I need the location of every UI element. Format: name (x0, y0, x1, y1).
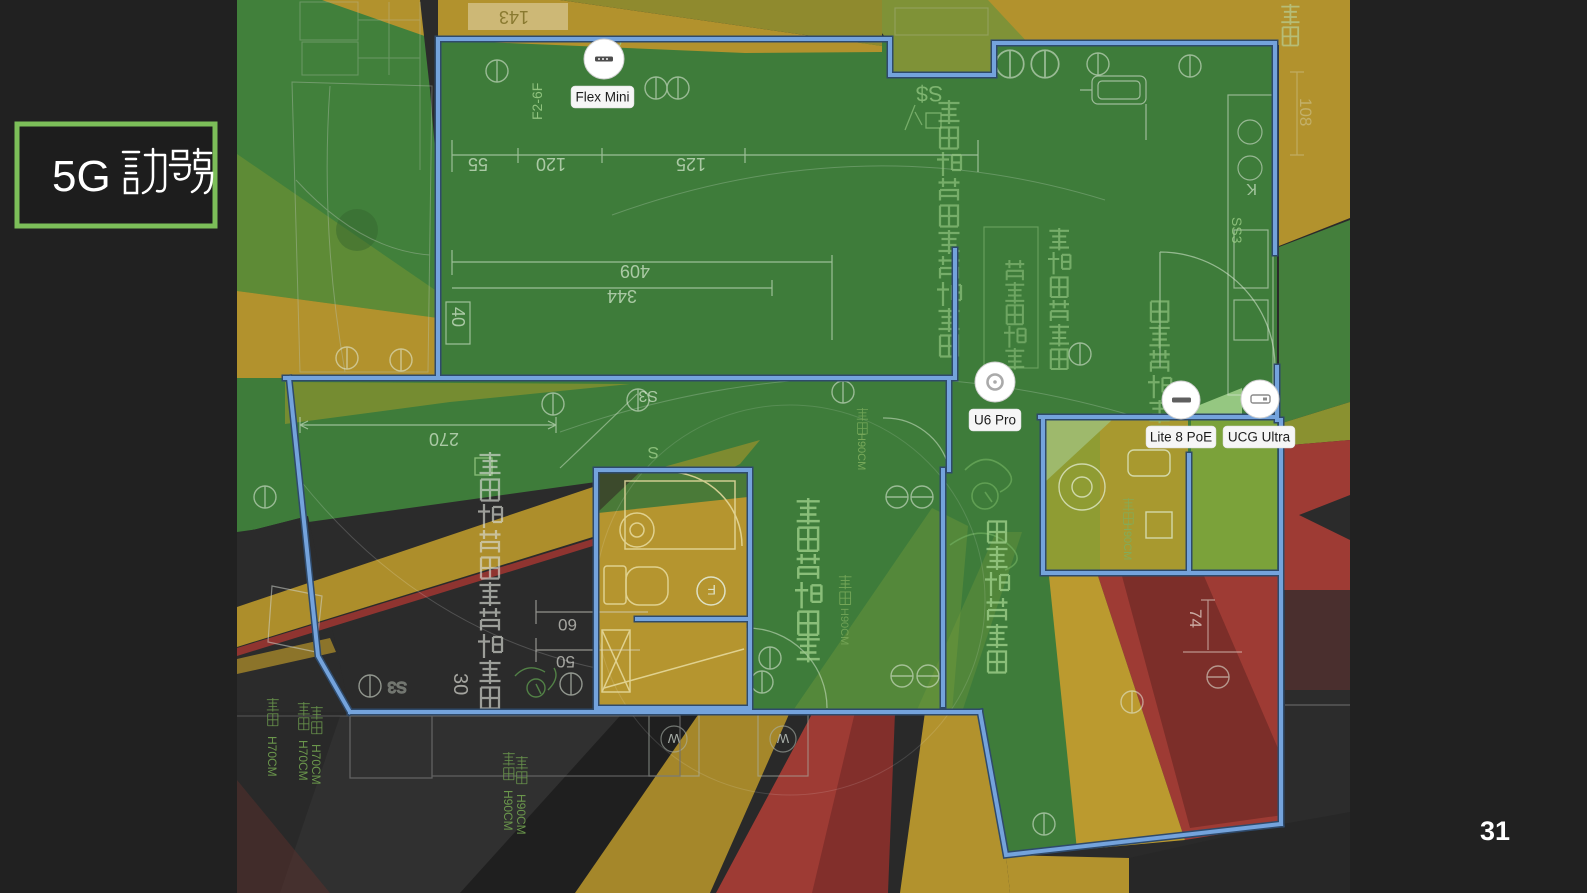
svg-text:108: 108 (1296, 98, 1315, 126)
svg-text:60: 60 (558, 615, 577, 634)
svg-text:W: W (667, 731, 680, 746)
svg-text:F: F (707, 582, 716, 598)
svg-text:H70CM: H70CM (296, 740, 310, 781)
svg-text:30: 30 (449, 673, 471, 695)
svg-text:SS3: SS3 (1229, 217, 1245, 244)
svg-text:125: 125 (676, 154, 706, 174)
svg-text:50: 50 (556, 652, 575, 671)
svg-text:Lite 8 PoE: Lite 8 PoE (1150, 430, 1212, 445)
svg-text:W: W (776, 731, 789, 746)
svg-text:270: 270 (429, 429, 459, 449)
svg-text:55: 55 (468, 154, 488, 174)
svg-text:40: 40 (448, 307, 468, 327)
svg-text:U6 Pro: U6 Pro (974, 413, 1016, 428)
svg-text:31: 31 (1480, 816, 1510, 846)
svg-text:F2-6F: F2-6F (529, 83, 545, 120)
svg-text:H90CM: H90CM (838, 608, 850, 645)
svg-text:K: K (1246, 180, 1257, 197)
svg-text:H90CM: H90CM (855, 433, 867, 470)
svg-text:S: S (648, 443, 659, 462)
svg-text:409: 409 (620, 261, 650, 281)
svg-text:5G: 5G (52, 152, 111, 201)
svg-text:143: 143 (499, 7, 529, 27)
svg-text:UCG Ultra: UCG Ultra (1228, 430, 1291, 445)
svg-text:S3: S3 (387, 678, 407, 695)
svg-text:74: 74 (1186, 609, 1205, 628)
svg-text:H90CM: H90CM (501, 790, 515, 831)
svg-text:120: 120 (536, 154, 566, 174)
svg-text:H90CM: H90CM (514, 794, 528, 835)
svg-text:344: 344 (607, 286, 637, 306)
svg-text:Flex Mini: Flex Mini (575, 90, 629, 105)
svg-text:H70CM: H70CM (265, 736, 279, 777)
svg-text:H70CM: H70CM (309, 744, 323, 785)
svg-text:H90CM: H90CM (1121, 523, 1133, 560)
